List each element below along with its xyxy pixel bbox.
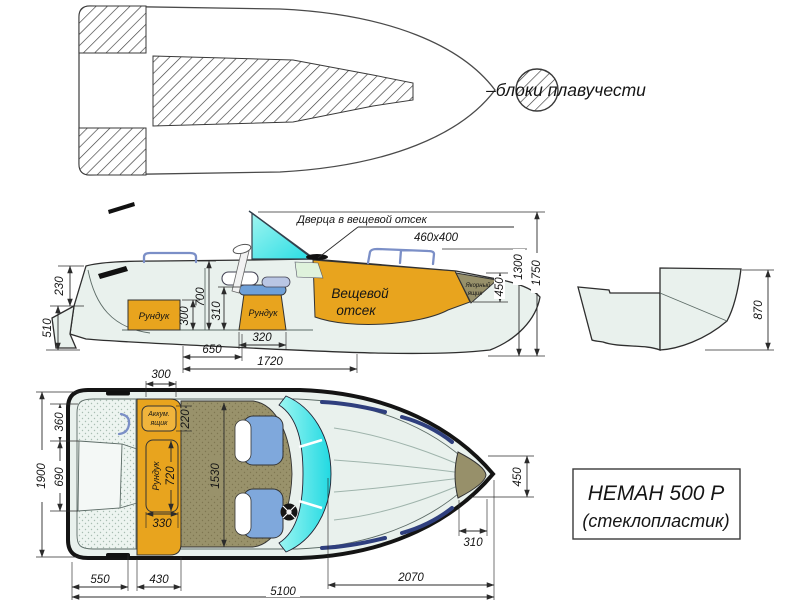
dim-1750-label: 1750 [531,260,543,286]
dim-320-label: 320 [252,332,272,344]
plan-headrest-left [235,420,251,462]
side-anchor-label-1: Якорный [465,282,491,289]
top-view-buoyancy [79,6,495,175]
dim-330-label: 330 [152,518,172,530]
dim-650-label: 650 [202,344,222,356]
dim-220-label: 220 [180,409,192,430]
dim-700-label: 700 [195,287,207,307]
door-leader-line [318,227,358,258]
dim-1530-label: 1530 [210,463,222,489]
dim-870-label: 870 [753,300,765,320]
legend: –блоки плавучести [485,69,646,111]
dim-550-label: 550 [90,574,110,586]
dim-1720-label: 1720 [257,356,283,368]
boat-material: (стеклопластик) [582,511,729,531]
dim-360-label: 360 [54,412,66,432]
dim-450-plan-label: 450 [512,467,524,487]
dim-230-label: 230 [54,276,66,297]
door-size-label: 460х400 [414,232,459,244]
plan-locker-label: Рундук [151,461,161,491]
transom-detail: 870 [578,268,774,350]
plan-headrest-right [235,493,251,535]
plan-steering-wheel [281,504,298,521]
side-gear-label-1: Вещевой [331,286,389,301]
dim-2070-label: 2070 [397,572,424,584]
dim-310-side-label: 310 [211,301,223,321]
door-leader-label: Дверца в вещевой отсек [295,214,428,226]
dim-510-label: 510 [42,318,54,338]
dim-1900-label: 1900 [36,463,48,489]
dim-300-side-label: 300 [179,306,191,326]
boat-model-name: НЕМАН 500 Р [588,482,725,505]
plan-motor-well [78,441,122,511]
dim-690-label: 690 [54,467,66,487]
side-anchor-label-2: ящик [467,291,484,297]
plan-battery-box [142,406,176,431]
plan-battery-label-1: Аккум. [147,411,170,418]
wheel-hub [286,509,291,514]
dim-310-plan-label: 310 [463,537,483,549]
title-box: НЕМАН 500 Р (стеклопластик) [573,469,740,539]
drawing-sheet: –блоки плавучести Рундук Рундук Вещевой … [0,0,800,600]
dim-300-plan-label: 300 [151,369,171,381]
plan-battery-label-2: ящик [150,420,169,427]
dim-450-side-label: 450 [494,277,506,297]
buoyancy-block-stern-top [79,6,146,53]
transom-panel [578,287,660,350]
boat-drawing-svg: –блоки плавучести Рундук Рундук Вещевой … [0,0,800,600]
side-dash-vent [262,277,290,287]
side-deck-hatch-handle [306,254,328,260]
side-gear-label-2: отсек [336,303,376,318]
dim-430-label: 430 [149,574,169,586]
stem-panel [660,268,741,350]
plan-view: Аккум. ящик Рундук 720 [36,369,534,600]
side-stern-light [108,202,135,214]
plan-stern-handle-top [106,391,130,396]
side-aft-locker-label: Рундук [139,311,170,322]
dim-1300-label: 1300 [513,254,525,280]
legend-label: –блоки плавучести [485,80,646,100]
side-view: Рундук Рундук Вещевой отсек Якорный ящик… [42,202,545,373]
side-bow-grab-rail [368,249,434,264]
side-seat-locker-label: Рундук [248,308,278,318]
buoyancy-block-stern-bottom [79,128,146,175]
dim-720-label: 720 [165,466,177,486]
dim-5100-label: 5100 [270,586,296,598]
plan-stern-handle-bottom [106,553,130,558]
